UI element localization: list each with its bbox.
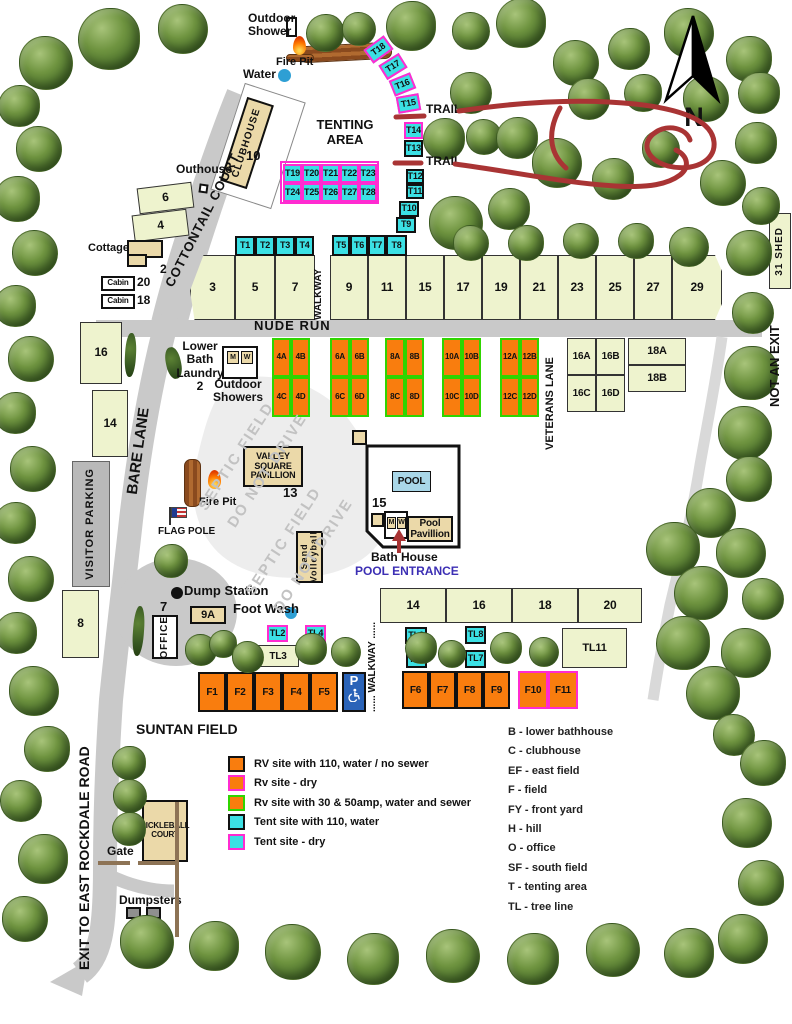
legend-swatch-rvFull [228, 795, 245, 811]
tree [718, 406, 772, 460]
tree [78, 8, 140, 70]
site-label: F3 [262, 687, 273, 698]
site-pool-pavillion: Pool Pavillion [407, 516, 453, 542]
tree [507, 933, 559, 985]
site-f5: F5 [310, 672, 338, 712]
tree [16, 126, 62, 172]
site-label: T16 [394, 77, 412, 92]
site-12d: 12D [520, 377, 539, 417]
site-label: T14 [406, 126, 421, 136]
site-8: 8 [62, 590, 99, 658]
tree [642, 130, 680, 168]
site-f7: F7 [429, 671, 456, 709]
site-label: VISITOR PARKING [85, 468, 97, 580]
site-label: TL3 [269, 651, 286, 662]
tree [295, 633, 327, 665]
tree [532, 138, 582, 188]
site-27: 27 [634, 255, 672, 320]
dump-station-icon [171, 587, 183, 599]
tree [592, 158, 634, 200]
legend-label: Tent site - dry [254, 836, 325, 848]
site-t5: T5 [332, 235, 350, 256]
site-label: T9 [401, 220, 411, 230]
gate-label: Gate [107, 845, 134, 858]
site-23: 23 [558, 255, 596, 320]
site-8a: 8A [385, 338, 405, 377]
tree [426, 929, 480, 983]
us-flag-icon [171, 507, 187, 518]
tree [0, 502, 36, 544]
abbreviation-item: TL - tree line [508, 901, 613, 920]
dumpster-spur-road [106, 874, 174, 891]
tree [19, 36, 73, 90]
site-16d: 16D [596, 375, 625, 412]
site-10a: 10A [442, 338, 462, 377]
site-label: T7 [372, 241, 382, 251]
site-label: 23 [571, 281, 584, 294]
site-label: 10C [445, 393, 459, 402]
outdoor-shower-label: Outdoor Shower [248, 12, 295, 39]
site-3: 3 [190, 255, 235, 320]
tree [0, 612, 37, 654]
tree [8, 336, 54, 382]
site-14: 14 [380, 588, 446, 623]
tree [0, 176, 40, 222]
site-20: 20 [578, 588, 642, 623]
legend-label: RV site with 110, water / no sewer [254, 758, 429, 770]
site-label: F8 [464, 685, 475, 696]
site-label: T13 [406, 144, 421, 154]
site-10b: 10B [462, 338, 481, 377]
site-label: TL2 [270, 629, 285, 639]
site-label: 14 [104, 417, 117, 430]
tree [18, 834, 68, 884]
site-label: 11 [381, 281, 393, 294]
tan-box [371, 513, 384, 527]
tree [664, 8, 714, 58]
tree [8, 556, 54, 602]
tree [438, 640, 466, 668]
legend-item: Tent site - dry [228, 832, 471, 852]
site-label: T8 [391, 241, 401, 251]
bare-lane-label: BARE LANE [125, 402, 154, 495]
site-t6: T6 [350, 235, 368, 256]
site-label: 16C [573, 388, 591, 399]
tree [189, 921, 239, 971]
tree [496, 0, 546, 48]
site-label: 25 [609, 281, 622, 294]
tree [24, 726, 70, 772]
site-12a: 12A [500, 338, 520, 377]
cottage-label: Cottage [88, 242, 129, 254]
site-tl8: TL8 [465, 626, 486, 644]
site-4d: 4D [291, 377, 310, 417]
cabin-18-number: 18 [137, 294, 150, 307]
tenting-area-label: TENTING AREA [310, 118, 380, 147]
tree [0, 780, 42, 822]
site-label: F6 [410, 685, 421, 696]
site-label: T10 [402, 204, 417, 214]
site-t4: T4 [295, 236, 314, 256]
tan-box [127, 254, 147, 267]
site-f4: F4 [282, 672, 310, 712]
site-t7: T7 [368, 235, 386, 256]
site-label: F5 [318, 687, 329, 698]
site-label: F4 [290, 687, 301, 698]
tree [386, 1, 436, 51]
site-label: T6 [354, 241, 364, 251]
site-14: 14 [92, 390, 128, 457]
tree [726, 456, 772, 502]
valley-pavillion-number: 13 [283, 486, 297, 501]
site-label: 8 [77, 617, 83, 630]
tree [232, 641, 264, 673]
site-label: Cabin [107, 279, 128, 288]
office-number: 7 [160, 600, 167, 615]
legend-swatch-tent [228, 814, 245, 830]
wheelchair-icon [347, 688, 361, 702]
pool-entrance-label: POOL ENTRANCE [355, 565, 459, 578]
cabin-20-number: 20 [137, 276, 150, 289]
site-label: T4 [299, 241, 309, 251]
tree [265, 924, 321, 980]
site-tl7: TL7 [465, 650, 486, 668]
site-t3: T3 [275, 236, 295, 256]
site-label: 16 [473, 599, 486, 612]
site-8d: 8D [405, 377, 424, 417]
tree [656, 616, 710, 670]
site-10c: 10C [442, 377, 462, 417]
tree [738, 860, 784, 906]
legend-swatch-tentDry [228, 834, 245, 850]
legend-item: Tent site with 110, water [228, 813, 471, 833]
site-label: 8A [390, 353, 400, 362]
site-16: 16 [80, 322, 122, 384]
outdoor-showers-label: Outdoor Showers [206, 378, 270, 405]
tree [342, 12, 376, 46]
site-16: 16 [446, 588, 512, 623]
tree [674, 566, 728, 620]
tree [529, 637, 559, 667]
site-15: 15 [406, 255, 444, 320]
site-label: 12D [522, 393, 536, 402]
legend-item: Rv site - dry [228, 774, 471, 794]
clubhouse-parking-number: 10 [246, 149, 260, 164]
site-t15: T15 [396, 93, 422, 114]
fire-pit-label: Fire Pit [276, 56, 313, 68]
not-an-exit-label: NOT AN EXIT [768, 292, 783, 407]
site-m: M [387, 517, 396, 529]
site-label: 10B [464, 353, 478, 362]
site-label: 6D [355, 393, 365, 402]
abbreviation-list: B - lower bathhouseC - clubhouseEF - eas… [508, 726, 613, 920]
site-f2: F2 [226, 672, 254, 712]
legend-label: Rv site with 30 & 50amp, water and sewer [254, 797, 471, 809]
tree [563, 223, 599, 259]
site-label: 9A [201, 609, 215, 621]
site-16c: 16C [567, 375, 596, 412]
tree [718, 914, 768, 964]
trail-label-2: TRAIL [426, 155, 461, 168]
site-label: W [244, 354, 250, 362]
tree [0, 85, 40, 127]
tree [664, 928, 714, 978]
site-label: 6C [335, 393, 345, 402]
site-9a: 9A [190, 606, 226, 624]
tree [496, 117, 538, 159]
site-4: 4 [132, 209, 190, 243]
hedge [131, 606, 145, 657]
site-label: 27 [647, 281, 660, 294]
site-tl2: TL2 [267, 625, 288, 642]
site-label: 4B [296, 353, 306, 362]
site-label: 16 [95, 346, 108, 359]
site-label: 18A [647, 345, 667, 357]
abbreviation-item: H - hill [508, 823, 613, 842]
tree [112, 812, 146, 846]
site-label: 21 [533, 281, 546, 294]
site-f8: F8 [456, 671, 483, 709]
site-label: 8B [410, 353, 420, 362]
tree [716, 528, 766, 578]
tree [488, 188, 530, 230]
tree [154, 544, 188, 578]
site-office: OFFICE [152, 615, 178, 659]
tree [9, 666, 59, 716]
site-t9: T9 [396, 217, 416, 233]
site-t10: T10 [399, 201, 419, 217]
site-label: T18 [370, 41, 388, 58]
map-legend: RV site with 110, water / no sewerRv sit… [228, 754, 471, 852]
legend-label: Tent site with 110, water [254, 816, 379, 828]
site-label: T2 [260, 241, 270, 251]
site-label: 17 [457, 281, 470, 294]
tree [735, 122, 777, 164]
exit-road-label: EXIT TO EAST ROCKDALE ROAD [77, 742, 93, 970]
site-10d: 10D [462, 377, 481, 417]
tree [669, 227, 709, 267]
handicap-p-label: P [350, 674, 359, 688]
tree [618, 223, 654, 259]
site-f10: F10 [518, 671, 548, 709]
site-label: T11 [408, 187, 422, 197]
legend-label: Rv site - dry [254, 777, 317, 789]
site-17: 17 [444, 255, 482, 320]
site-label: 4D [296, 393, 306, 402]
tree [120, 915, 174, 969]
tree [742, 578, 784, 620]
abbreviation-item: C - clubhouse [508, 745, 613, 764]
tree [331, 637, 361, 667]
site-t8: T8 [386, 235, 407, 256]
site-label: F11 [555, 685, 571, 696]
flag-pole-label: FLAG POLE [158, 526, 215, 537]
compass-n-label: N [672, 102, 716, 133]
site-4b: 4B [291, 338, 310, 377]
veterans-lane-label: VETERANS LANE [544, 350, 556, 450]
tree [0, 392, 36, 434]
legend-item: RV site with 110, water / no sewer [228, 754, 471, 774]
tree [347, 933, 399, 985]
site-label: 20 [604, 599, 617, 612]
site-18b: 18B [628, 365, 686, 392]
site-f3: F3 [254, 672, 282, 712]
site-31-shed: 31 SHED [769, 213, 791, 289]
site-label: 6B [355, 353, 365, 362]
abbreviation-item: F - field [508, 784, 613, 803]
tree [700, 160, 746, 206]
site-16a: 16A [567, 338, 596, 375]
site-label: T1 [240, 241, 250, 251]
site-label: 29 [691, 281, 704, 294]
site-label: TL11 [582, 642, 606, 654]
site-w: W [397, 517, 406, 529]
water-label: Water [243, 68, 276, 81]
site-label: F7 [437, 685, 448, 696]
frame-box [280, 161, 379, 204]
hedge [124, 333, 137, 378]
site-label: 14 [407, 599, 420, 612]
site-label: 16D [602, 388, 620, 399]
site-label: 18B [647, 372, 667, 384]
tree [740, 740, 786, 786]
tree [158, 4, 208, 54]
site-visitor-parking: VISITOR PARKING [72, 461, 110, 587]
tree [738, 72, 780, 114]
site-label: 16B [602, 351, 620, 362]
tree [0, 285, 36, 327]
site-label: F9 [491, 685, 502, 696]
site-11: 11 [368, 255, 406, 320]
site-t1: T1 [235, 236, 255, 256]
site-8b: 8B [405, 338, 424, 377]
tree [2, 896, 48, 942]
site-label: 9 [346, 281, 352, 294]
tree [405, 632, 437, 664]
site-t12: T12 [406, 169, 424, 184]
tree [608, 28, 650, 70]
site-12c: 12C [500, 377, 520, 417]
site-pool: POOL [392, 471, 431, 492]
site-label: TL8 [468, 630, 483, 640]
tan-box [352, 430, 367, 445]
site-label: 5 [252, 281, 258, 294]
site-label: 12B [522, 353, 536, 362]
site-6a: 6A [330, 338, 350, 377]
abbreviation-item: O - office [508, 842, 613, 861]
tree [10, 446, 56, 492]
tree [113, 779, 147, 813]
tree [12, 230, 58, 276]
site-label: 16A [573, 351, 591, 362]
site-label: F1 [206, 687, 217, 698]
site-12b: 12B [520, 338, 539, 377]
abbreviation-item: B - lower bathhouse [508, 726, 613, 745]
site-label: T5 [336, 241, 346, 251]
site-label: 8D [410, 393, 420, 402]
site-cabin: Cabin [101, 276, 135, 291]
site-label: 6 [161, 191, 169, 205]
site-16b: 16B [596, 338, 625, 375]
site-tl11: TL11 [562, 628, 627, 668]
site-t13: T13 [404, 140, 423, 157]
campground-map: P RV site with 110, water / no sewerRv s… [0, 0, 792, 1024]
bath-house-label: Bath House [371, 551, 438, 564]
site-6b: 6B [350, 338, 369, 377]
site-cabin: Cabin [101, 294, 135, 309]
tree [453, 225, 489, 261]
site-18a: 18A [628, 338, 686, 365]
site-label: M [389, 519, 395, 527]
tree [452, 12, 490, 50]
site-18: 18 [512, 588, 578, 623]
site-label: 18 [539, 599, 552, 612]
site-label: T3 [280, 241, 290, 251]
site-label: 10A [445, 353, 459, 362]
tree [508, 225, 544, 261]
dumpsters-label: Dumpsters [119, 894, 182, 907]
nude-run-label: NUDE RUN [254, 319, 331, 334]
tree [490, 632, 522, 664]
site-label: T17 [384, 58, 402, 74]
site-label: W [398, 519, 404, 527]
site-label: 19 [495, 281, 508, 294]
suntan-field-label: SUNTAN FIELD [136, 722, 238, 738]
site-6d: 6D [350, 377, 369, 417]
tree [742, 187, 780, 225]
site-5: 5 [235, 255, 275, 320]
site-6c: 6C [330, 377, 350, 417]
site-9: 9 [330, 255, 368, 320]
site-f9: F9 [483, 671, 510, 709]
site-21: 21 [520, 255, 558, 320]
site-7: 7 [275, 255, 315, 320]
handicap-parking-sign: P [342, 672, 366, 712]
site-label: OFFICE [160, 616, 171, 659]
site-f1: F1 [198, 672, 226, 712]
tree [726, 230, 772, 276]
tree [568, 78, 610, 120]
tree [686, 666, 740, 720]
site-label: 4 [156, 219, 164, 233]
site-w: W [241, 351, 253, 364]
site-f11: F11 [548, 671, 578, 709]
walkway-north-label: WALKWAY [313, 262, 324, 320]
walkway-south-label: ...... WALKWAY ...... [367, 592, 378, 712]
site-label: PICKLEBALL COURT [141, 822, 190, 840]
tree [306, 14, 344, 52]
site-label: Pool Pavillion [410, 518, 449, 540]
tree [624, 74, 662, 112]
site-label: Cabin [107, 297, 128, 306]
trail-label-1: TRAIL [426, 103, 461, 116]
site-label: 31 SHED [775, 227, 786, 276]
abbreviation-item: SF - south field [508, 862, 613, 881]
tree [586, 923, 640, 977]
site-label: 3 [209, 281, 215, 294]
tree [112, 746, 146, 780]
site-label: 12C [503, 393, 517, 402]
site-t2: T2 [255, 236, 275, 256]
site-label: F10 [525, 685, 542, 696]
site-label: 4A [277, 353, 287, 362]
site-label: POOL [398, 476, 426, 487]
site-label: T12 [408, 172, 423, 182]
water-spigot-icon [278, 69, 291, 82]
site-4a: 4A [272, 338, 291, 377]
site-label: 10D [464, 393, 478, 402]
abbreviation-item: EF - east field [508, 765, 613, 784]
